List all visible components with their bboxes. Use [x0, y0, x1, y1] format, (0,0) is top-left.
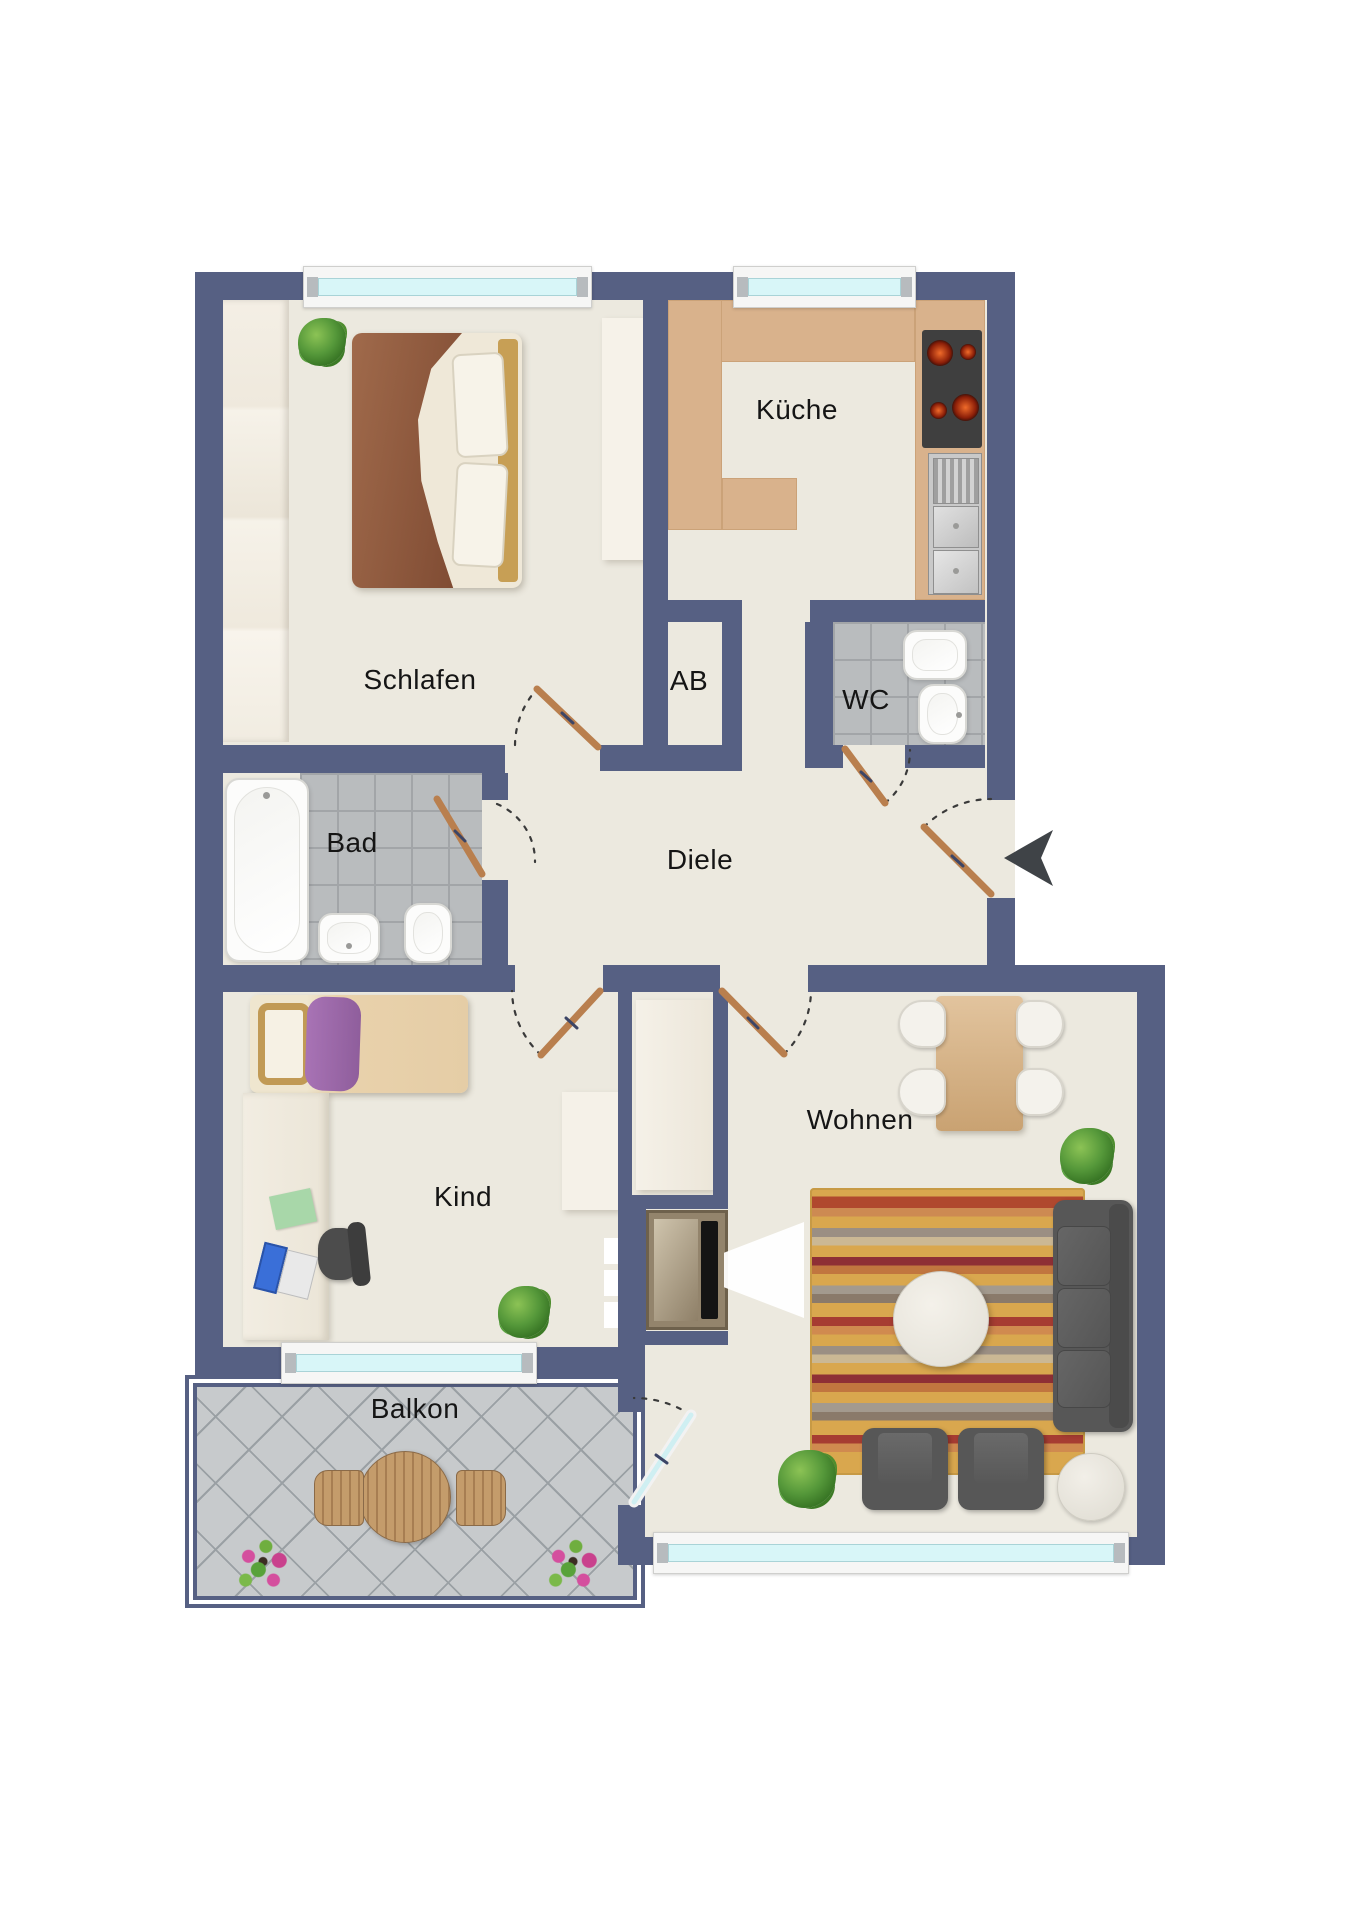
wall-segment: [195, 965, 515, 992]
tv-screen: [701, 1221, 718, 1319]
wall-segment: [482, 773, 508, 800]
dining-chair: [1016, 1000, 1064, 1048]
office-chair: [318, 1228, 362, 1280]
burner: [960, 344, 976, 360]
window: [281, 1342, 537, 1384]
wall-segment: [632, 1331, 728, 1345]
wall-segment: [482, 880, 508, 965]
wall-segment: [810, 600, 985, 622]
double-bed: [352, 333, 522, 588]
flower-pot: [234, 1536, 292, 1594]
tv-cabinet: [646, 1210, 728, 1330]
wall-segment: [195, 272, 223, 1375]
balcony-table: [359, 1451, 451, 1543]
room-label-balkon: Balkon: [371, 1393, 460, 1425]
sofa: [1053, 1200, 1133, 1432]
tv-cabinet-shelf: [654, 1219, 698, 1321]
cabinet: [562, 1092, 618, 1210]
room-label-ab: AB: [670, 665, 708, 697]
bathtub: [225, 778, 309, 962]
wall-segment: [643, 600, 742, 622]
kitchen-sink-unit: [928, 453, 982, 595]
window: [653, 1532, 1129, 1574]
wardrobe: [223, 300, 289, 742]
sofa-cushion: [1057, 1288, 1111, 1348]
wc-sink: [903, 630, 967, 680]
coffee-table: [893, 1271, 989, 1367]
floor-threshold-entrance: [987, 800, 1015, 898]
burner: [952, 394, 979, 421]
room-label-kind: Kind: [434, 1181, 492, 1213]
armchair-seat: [878, 1433, 932, 1483]
armchair: [958, 1428, 1044, 1510]
room-label-schlafen: Schlafen: [364, 664, 477, 696]
burner: [927, 340, 953, 366]
sofa-cushion: [1057, 1226, 1111, 1286]
wall-segment: [643, 300, 668, 745]
dining-table: [936, 996, 1023, 1131]
stove: [922, 330, 982, 448]
pillow: [451, 462, 508, 569]
wall-segment: [713, 992, 728, 1195]
single-bed: [250, 995, 468, 1093]
pillow: [258, 1003, 310, 1085]
hall-wardrobe: [636, 1000, 713, 1190]
toilet: [404, 903, 452, 963]
kitchen-counter-peninsula: [722, 478, 797, 530]
bidet: [318, 913, 380, 963]
pillow: [451, 352, 508, 459]
wall-segment: [195, 1347, 283, 1375]
wall-segment: [1137, 965, 1165, 1565]
wall-segment: [603, 965, 720, 992]
wall-segment: [987, 272, 1015, 800]
wall-segment: [632, 1195, 646, 1345]
dresser: [602, 318, 645, 560]
floor-threshold-kind-door: [515, 965, 603, 992]
wc-toilet: [918, 684, 967, 744]
room-label-diele: Diele: [667, 844, 733, 876]
dining-chair: [1016, 1068, 1064, 1116]
wall-segment: [618, 1345, 645, 1412]
burner: [930, 402, 947, 419]
sofa-cushion: [1057, 1350, 1111, 1408]
sofa-back: [1109, 1204, 1129, 1428]
wall-segment: [618, 1505, 645, 1565]
wall-segment: [722, 622, 742, 745]
armchair: [862, 1428, 948, 1510]
bed-blanket: [304, 996, 361, 1092]
wall-segment: [195, 745, 505, 773]
wall-segment: [618, 992, 632, 1347]
kitchen-counter-left: [668, 300, 722, 530]
window: [733, 266, 916, 308]
wall-segment: [808, 965, 1165, 992]
wall-segment: [600, 745, 742, 771]
sink-basin: [933, 550, 979, 594]
dining-chair: [898, 1000, 946, 1048]
floor-threshold-wohnen-door: [720, 965, 808, 992]
flower-pot: [544, 1536, 602, 1594]
sink-basin: [933, 506, 979, 548]
bed-blanket: [352, 333, 462, 588]
side-table: [1057, 1453, 1125, 1521]
balcony-chair: [456, 1470, 506, 1526]
room-label-wohnen: Wohnen: [807, 1104, 914, 1136]
window: [303, 266, 592, 308]
wall-segment: [632, 1195, 728, 1209]
room-label-kueche: Küche: [756, 394, 838, 426]
wall-segment: [905, 745, 985, 768]
sink-drainer: [933, 458, 979, 504]
floor-threshold-schlafen-door: [505, 745, 600, 773]
armchair-seat: [974, 1433, 1028, 1483]
room-label-bad: Bad: [326, 827, 377, 859]
floorplan-page: Schlafen Küche AB WC Bad Diele Kind Wohn…: [0, 0, 1357, 1920]
wall-segment: [585, 272, 740, 300]
room-label-wc: WC: [842, 684, 890, 716]
balcony-chair: [314, 1470, 364, 1526]
wall-segment: [805, 745, 843, 768]
